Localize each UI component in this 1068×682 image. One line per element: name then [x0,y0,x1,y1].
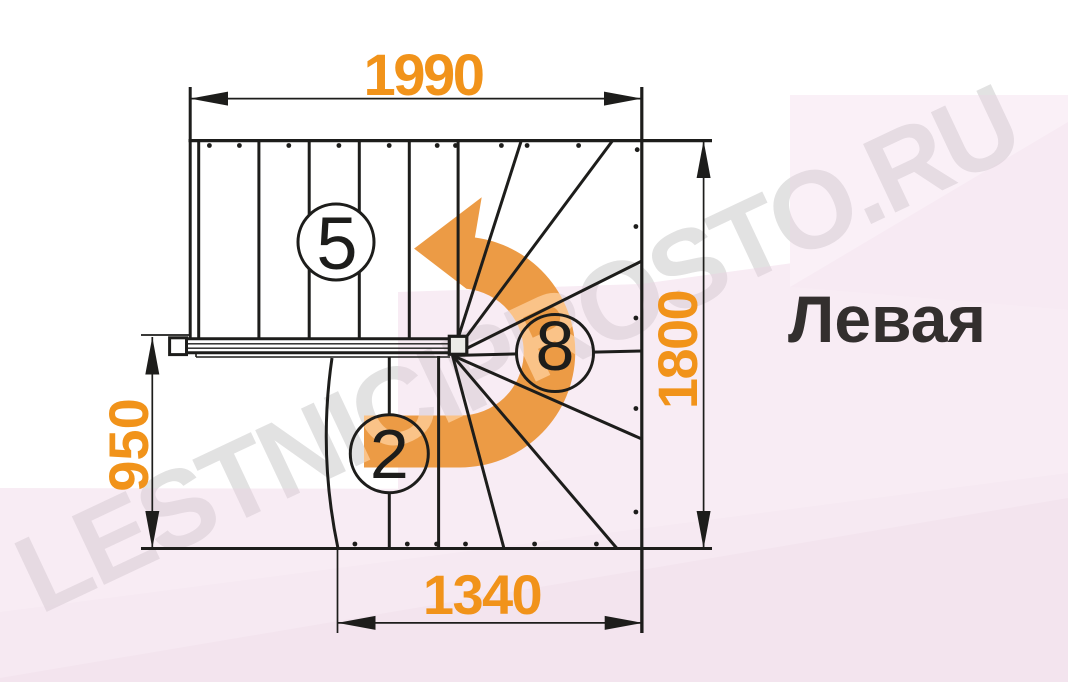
svg-text:1990: 1990 [363,43,482,108]
svg-text:1800: 1800 [646,291,709,409]
svg-text:Левая: Левая [788,282,986,356]
svg-text:950: 950 [97,398,160,491]
svg-text:8: 8 [536,307,575,385]
svg-text:5: 5 [316,202,357,285]
svg-text:2: 2 [370,415,409,493]
svg-text:1340: 1340 [423,563,541,626]
